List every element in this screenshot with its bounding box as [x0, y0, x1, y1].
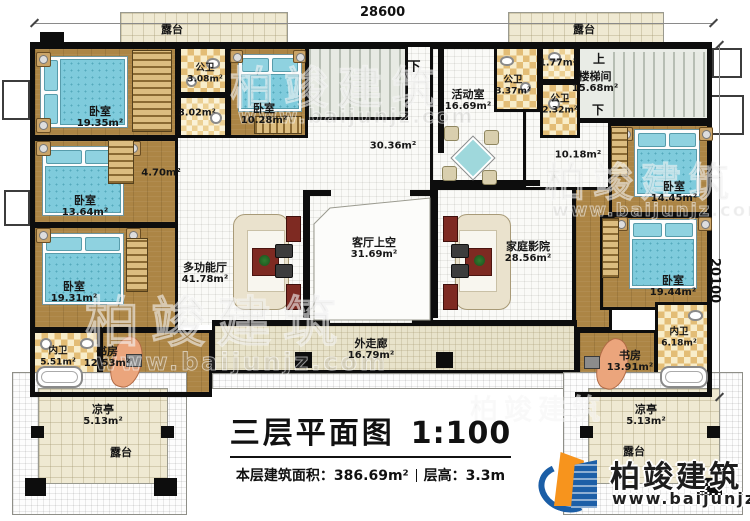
wall [575, 392, 712, 397]
label-bedroom-1944: 卧室19.44m² [650, 275, 696, 299]
label-stairwell: 楼梯间15.68m² [572, 71, 618, 95]
wardrobe [126, 238, 148, 292]
wall [30, 42, 35, 395]
logo-building-icon [571, 460, 597, 508]
wall [577, 118, 712, 123]
label-pubbath-308: 公卫3.08m² [187, 64, 223, 85]
terrace-pillar [25, 478, 46, 496]
label-terrace-top-right: 露台 [573, 24, 595, 36]
wardrobe [108, 140, 134, 184]
bathtub [36, 366, 83, 388]
label-innerbath-left: 内卫5.51m² [40, 347, 76, 368]
terrace-pillar [31, 426, 44, 438]
logo-website: www.baijunjz.com [612, 489, 750, 508]
nightstand [36, 228, 51, 243]
wardrobe [611, 127, 628, 177]
label-pubbath-232: 公卫2.32m² [542, 95, 578, 116]
label-stairs-down-mid: 下 [407, 61, 420, 76]
nightstand [698, 217, 712, 231]
label-home-theater: 家庭影院28.56m² [505, 241, 551, 265]
right-dimension-line [719, 45, 720, 397]
top-dimension-label: 28600 [360, 5, 405, 20]
bay-window [4, 190, 30, 226]
label-study-left: 书房12.53m² [84, 346, 130, 370]
label-hall-470: 4.70m² [141, 167, 180, 178]
label-stair-down-right: 下 [592, 104, 604, 118]
company-logo: 柏竣建筑 www.baijunjz.com [538, 448, 750, 518]
activity-table [440, 124, 502, 188]
right-dimension-label: 20100 [707, 258, 722, 303]
label-bedroom-1445: 卧室14.45m² [651, 181, 697, 205]
label-terrace-bottom-left: 露台 [110, 447, 132, 459]
nightstand [699, 127, 713, 141]
label-bedroom-1931: 卧室19.31m² [51, 281, 97, 305]
corridor-edge [212, 373, 577, 389]
plan-scale: 1:100 [411, 416, 512, 451]
nightstand [293, 50, 306, 63]
label-innerbath-right: 内卫6.18m² [661, 328, 697, 349]
terrace-pillar [154, 478, 177, 496]
nightstand [36, 118, 51, 133]
sofa-group-left [233, 210, 301, 312]
label-bedroom-1935: 卧室19.35m² [77, 106, 123, 130]
nightstand [230, 50, 243, 63]
wardrobe [602, 218, 619, 278]
label-living-void: 客厅上空31.69m² [351, 237, 397, 261]
wardrobe [132, 50, 172, 132]
page-title: 三层平面图1:100 [230, 408, 512, 458]
label-stair-up: 上 [593, 53, 605, 67]
label-corridor: 外走廊16.79m² [348, 338, 394, 362]
label-hall-1018: 10.18m² [555, 149, 601, 160]
label-activity: 活动室16.69m² [445, 89, 491, 113]
label-bath-302: 3.02m² [178, 109, 216, 120]
toilet [500, 56, 514, 66]
wall [412, 320, 577, 326]
wall [431, 192, 438, 318]
nightstand [36, 52, 51, 67]
sofa-group-right [443, 210, 511, 312]
floor-plan-canvas: 28600 20100 [0, 0, 750, 521]
title-block: 三层平面图1:100 本层建筑面积：386.69m²层高：3.3m [198, 408, 543, 485]
label-hall-3036: 30.36m² [370, 140, 416, 151]
label-pavilion-right: 凉亭5.13m² [626, 404, 665, 428]
nightstand [36, 141, 51, 156]
stair-treads [613, 52, 707, 117]
label-multi-hall: 多功能厅41.78m² [182, 262, 228, 286]
wall [30, 392, 212, 397]
terrace-pillar [580, 426, 593, 438]
bay-window [2, 80, 30, 120]
wall [30, 42, 712, 47]
label-bedroom-1028: 卧室10.28m² [241, 103, 287, 127]
terrace-pillar [161, 426, 174, 438]
bay-window [712, 48, 742, 78]
label-study-right: 书房13.91m² [607, 350, 653, 374]
plan-stats: 本层建筑面积：386.69m²层高：3.3m [198, 465, 543, 485]
label-pavilion-left: 凉亭5.13m² [83, 404, 122, 428]
outer-corridor [212, 323, 577, 373]
label-bedroom-1364: 卧室13.64m² [62, 195, 108, 219]
label-terrace-top-left: 露台 [161, 24, 183, 36]
stairs-top [306, 46, 408, 120]
computer-monitor [584, 356, 600, 369]
toilet [688, 310, 703, 321]
corridor-pillar [295, 352, 312, 368]
label-bath-177: 1.77m² [539, 59, 577, 70]
corridor-pillar [436, 352, 453, 368]
label-pubbath-337: 公卫3.37m² [495, 76, 531, 97]
dimension-tick [709, 18, 718, 27]
terrace-pillar [707, 426, 720, 438]
wall [303, 192, 310, 318]
bay-window [710, 95, 744, 135]
top-dimension-line [34, 23, 714, 24]
bathtub [660, 366, 708, 388]
terrace-top-left [120, 12, 288, 46]
